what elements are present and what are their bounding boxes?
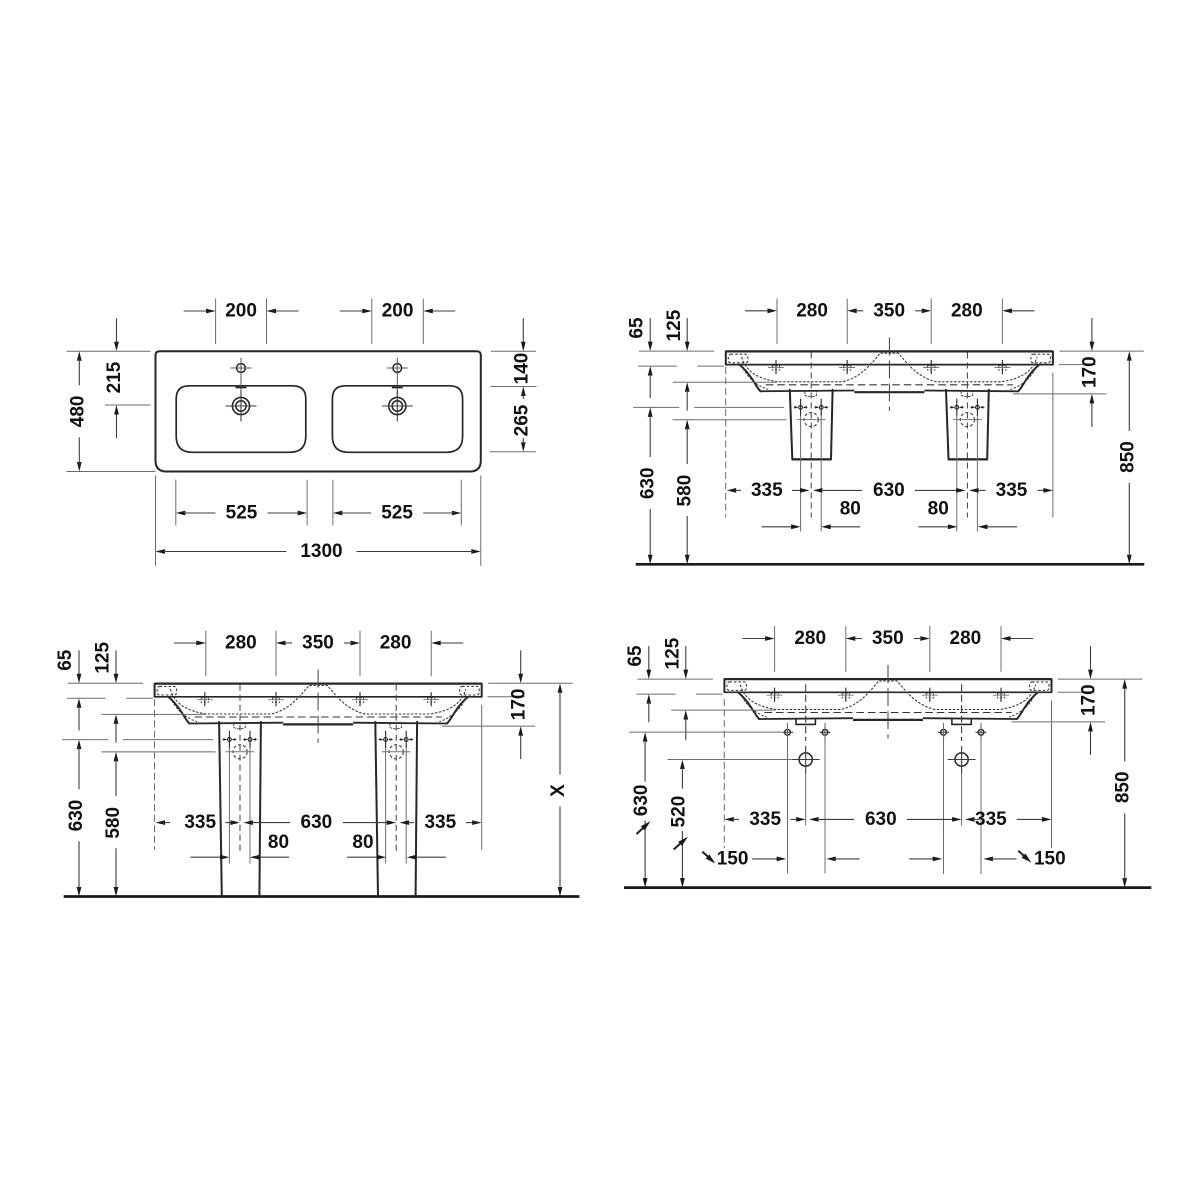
svg-text:125: 125 bbox=[93, 642, 114, 674]
svg-text:580: 580 bbox=[103, 807, 124, 839]
svg-text:335: 335 bbox=[996, 480, 1028, 501]
svg-text:80: 80 bbox=[928, 498, 949, 519]
svg-text:350: 350 bbox=[302, 633, 334, 654]
svg-text:335: 335 bbox=[184, 812, 216, 833]
svg-text:280: 280 bbox=[380, 633, 412, 654]
svg-text:80: 80 bbox=[268, 832, 289, 853]
svg-text:850: 850 bbox=[1117, 441, 1138, 473]
svg-text:80: 80 bbox=[352, 832, 373, 853]
svg-text:150: 150 bbox=[1034, 848, 1066, 869]
svg-text:280: 280 bbox=[796, 300, 828, 321]
svg-text:65: 65 bbox=[625, 645, 646, 667]
svg-text:335: 335 bbox=[424, 812, 456, 833]
svg-text:630: 630 bbox=[865, 809, 897, 830]
svg-text:125: 125 bbox=[663, 637, 684, 669]
svg-text:280: 280 bbox=[950, 628, 982, 649]
svg-text:1300: 1300 bbox=[300, 541, 342, 562]
svg-text:65: 65 bbox=[626, 317, 647, 339]
svg-text:170: 170 bbox=[509, 689, 530, 721]
svg-text:X: X bbox=[548, 784, 569, 797]
svg-text:630: 630 bbox=[637, 467, 658, 499]
svg-text:350: 350 bbox=[872, 628, 904, 649]
svg-text:170: 170 bbox=[1078, 684, 1099, 716]
svg-text:480: 480 bbox=[67, 396, 88, 428]
svg-text:150: 150 bbox=[717, 848, 749, 869]
svg-text:335: 335 bbox=[749, 809, 781, 830]
svg-text:630: 630 bbox=[66, 800, 87, 832]
svg-text:200: 200 bbox=[382, 301, 414, 322]
svg-text:630: 630 bbox=[873, 480, 905, 501]
svg-text:125: 125 bbox=[664, 309, 685, 341]
svg-text:630: 630 bbox=[631, 785, 652, 817]
svg-text:525: 525 bbox=[381, 503, 413, 524]
svg-text:350: 350 bbox=[873, 300, 905, 321]
svg-text:520: 520 bbox=[669, 796, 690, 828]
svg-text:525: 525 bbox=[226, 503, 258, 524]
svg-text:170: 170 bbox=[1080, 356, 1101, 388]
svg-text:65: 65 bbox=[55, 649, 76, 671]
svg-text:580: 580 bbox=[674, 475, 695, 507]
svg-text:140: 140 bbox=[512, 353, 533, 385]
svg-text:630: 630 bbox=[301, 812, 333, 833]
svg-text:335: 335 bbox=[751, 480, 783, 501]
svg-text:280: 280 bbox=[951, 300, 983, 321]
svg-text:200: 200 bbox=[225, 301, 257, 322]
svg-text:215: 215 bbox=[104, 361, 125, 393]
svg-text:850: 850 bbox=[1113, 771, 1134, 803]
svg-text:335: 335 bbox=[975, 809, 1007, 830]
svg-text:80: 80 bbox=[840, 498, 861, 519]
svg-text:280: 280 bbox=[794, 628, 826, 649]
svg-text:265: 265 bbox=[512, 404, 533, 436]
svg-text:280: 280 bbox=[225, 633, 257, 654]
